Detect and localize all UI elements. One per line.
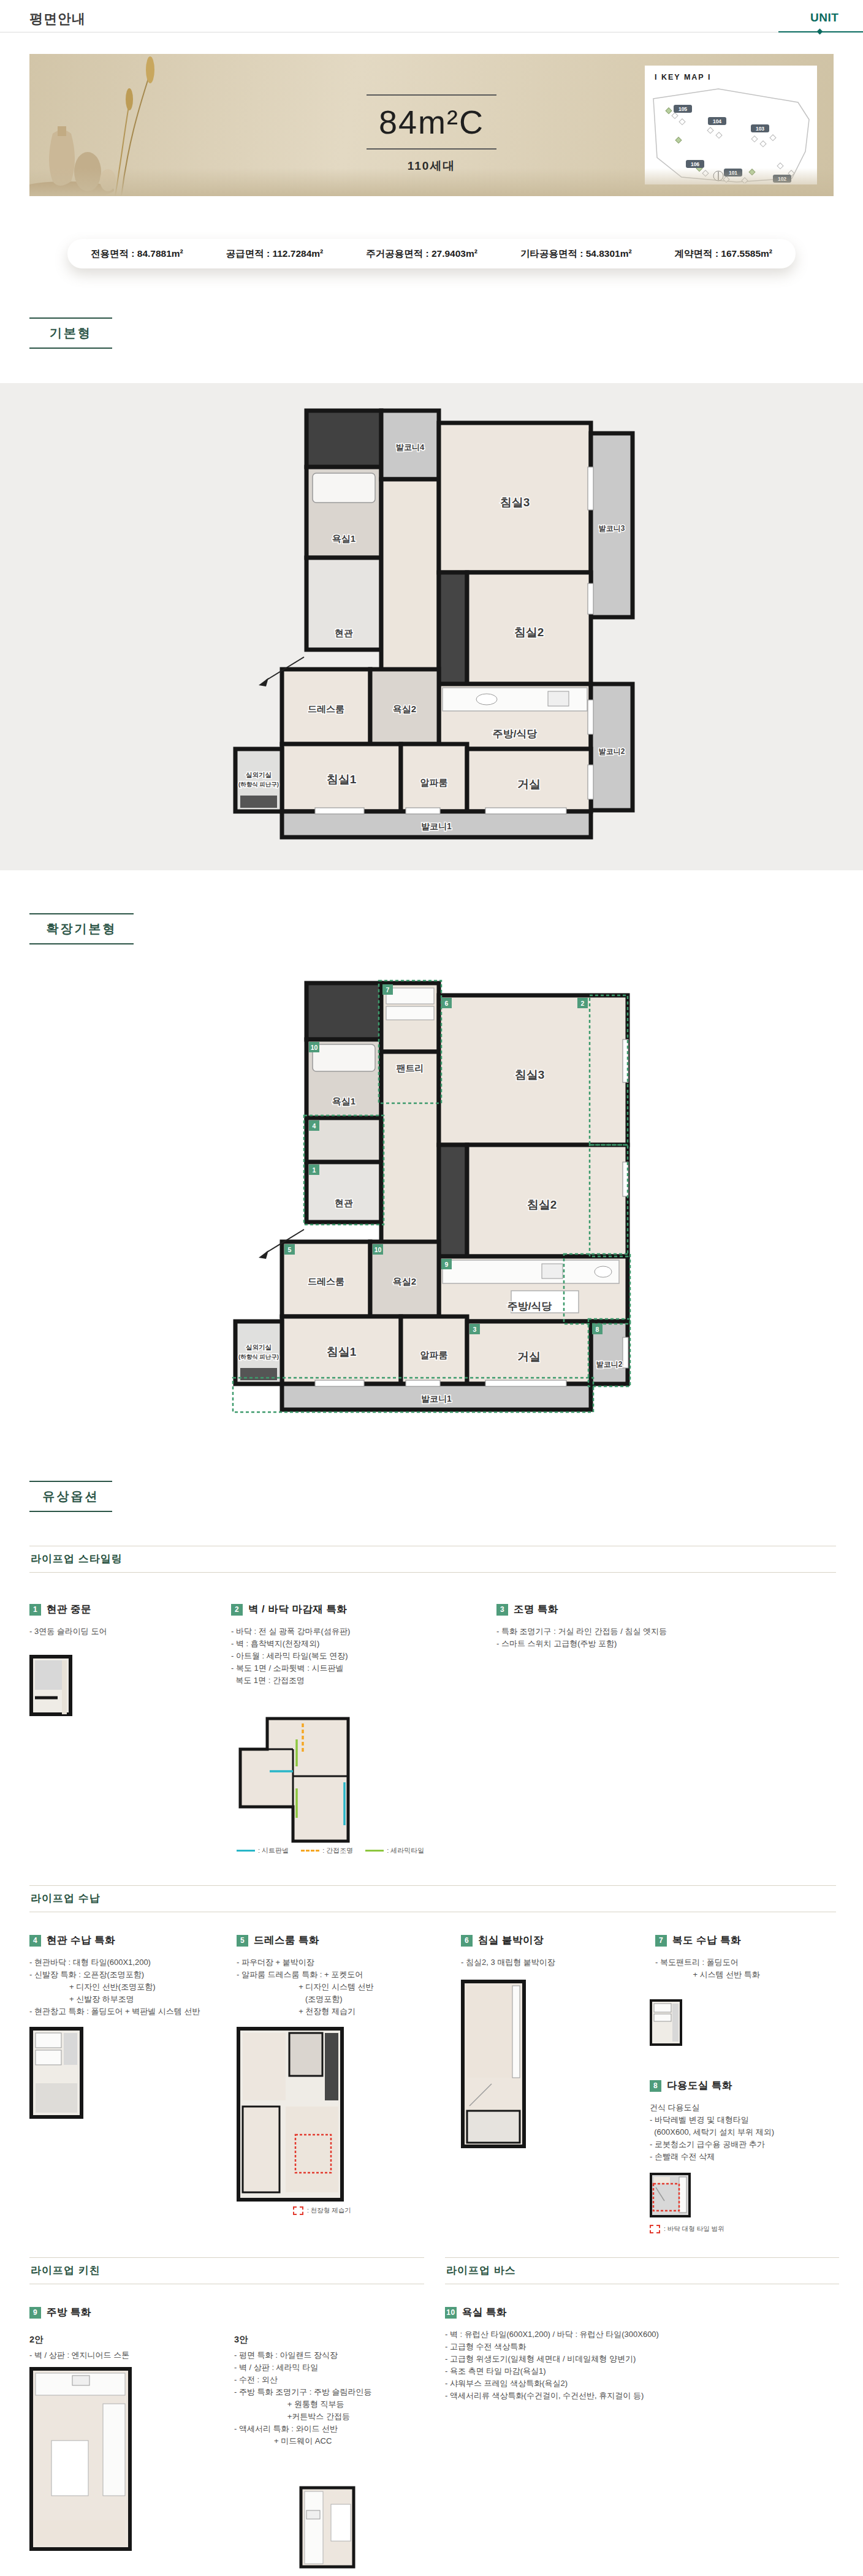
tab-unit[interactable]: UNIT [810, 11, 838, 25]
option-item-1: 1 현관 중문 - 3연동 슬라이딩 도어 [29, 1603, 213, 1638]
svg-text:침실2: 침실2 [514, 626, 544, 639]
option-9-title: 주방 특화 [47, 2306, 91, 2319]
section-label-paid-options: 유상옵션 [29, 1481, 112, 1512]
basic-floor-plan: 발코니4 욕실1 현관 침실3 발코니3 침실2 주방/식당 거실 발코니2 드… [223, 406, 640, 841]
option-6-title: 침실 붙박이장 [478, 1934, 544, 1947]
svg-text:103: 103 [756, 126, 764, 132]
red-dash-tile-swatch-icon [650, 2225, 660, 2233]
svg-text:욕실2: 욕실2 [393, 704, 416, 714]
svg-text:알파룸: 알파룸 [420, 1350, 448, 1360]
svg-text:106: 106 [691, 161, 699, 167]
dressroom-plan-thumbnail [237, 2027, 344, 2202]
svg-text:4: 4 [313, 1122, 316, 1130]
svg-text:3: 3 [473, 1326, 477, 1333]
option-item-7: 7 복도 수납 특화 - 복도팬트리 : 폴딩도어 + 시스템 선반 특화 [655, 1934, 839, 1981]
svg-text:침실2: 침실2 [527, 1198, 557, 1211]
option-1-badge: 1 [29, 1604, 41, 1616]
option-3-lines: - 특화 조명기구 : 거실 라인 간접등 / 침실 엣지등 - 스마트 스위치… [496, 1625, 834, 1650]
svg-text:발코니2: 발코니2 [599, 747, 625, 756]
option-9-badge: 9 [29, 2307, 41, 2319]
svg-text:2: 2 [581, 1000, 585, 1007]
svg-text:10: 10 [374, 1246, 382, 1253]
section-label-basic: 기본형 [29, 317, 112, 349]
svg-text:침실1: 침실1 [327, 773, 357, 786]
option-8-title: 다용도실 특화 [667, 2079, 732, 2092]
option-5-badge: 5 [237, 1935, 248, 1947]
option-item-10: 10 욕실 특화 - 벽 : 유럽산 타일(600X1,200) / 바닥 : … [445, 2306, 837, 2402]
tab-marker-icon [817, 29, 823, 35]
utility-room-plan-thumbnail [650, 2173, 691, 2217]
option-8-badge: 8 [650, 2080, 661, 2092]
area-item-residential-common: 주거공용면적 : 27.9403m² [366, 248, 477, 260]
svg-text:101: 101 [729, 170, 737, 176]
red-dash-swatch-icon [293, 2206, 303, 2215]
group-header-kitchen: 라이프업 키친 [29, 2257, 424, 2284]
option-3-title: 조명 특화 [514, 1603, 558, 1616]
svg-text:현관: 현관 [335, 628, 353, 638]
area-item-other-common: 기타공용면적 : 54.8301m² [520, 248, 632, 260]
svg-text:현관: 현관 [335, 1198, 353, 1208]
svg-text:104: 104 [713, 118, 721, 124]
variant-2-lines: - 벽 / 상판 : 엔지니어드 스톤 [29, 2349, 213, 2361]
area-item-supply: 공급면적 : 112.7284m² [226, 248, 324, 260]
kitchen-plan-2-thumbnail [29, 2367, 132, 2551]
option-7-lines: - 복도팬트리 : 폴딩도어 + 시스템 선반 특화 [655, 1956, 839, 1981]
corridor-pantry-plan-thumbnail [650, 1999, 682, 2046]
option-item-2: 2 벽 / 바닥 마감재 특화 - 바닥 : 전 실 광폭 강마루(섬유판) -… [231, 1603, 464, 1687]
legend-ceramic-tile: : 세라믹타일 [387, 1846, 424, 1855]
svg-text:주방/식당: 주방/식당 [508, 1301, 552, 1312]
option-4-title: 현관 수납 특화 [47, 1934, 115, 1947]
svg-text:거실: 거실 [517, 1350, 541, 1363]
option-8-lines: 건식 다용도실 - 바닥레벨 변경 및 대형타일 (600X600, 세탁기 설… [650, 2102, 852, 2163]
svg-text:7: 7 [386, 986, 390, 994]
svg-text:발코니1: 발코니1 [421, 1394, 452, 1404]
option-6-badge: 6 [461, 1935, 473, 1947]
group-header-styling: 라이프업 스타일링 [29, 1546, 836, 1573]
option-item-9: 9 주방 특화 [29, 2306, 275, 2319]
group-header-storage: 라이프업 수납 [29, 1885, 836, 1912]
option-10-title: 욕실 특화 [462, 2306, 507, 2319]
variant-2-label: 2안 [29, 2334, 213, 2346]
page-title: 평면안내 [29, 10, 86, 28]
finish-material-plan-thumbnail [237, 1715, 353, 1845]
header-divider [0, 32, 863, 32]
option-1-title: 현관 중문 [47, 1603, 91, 1616]
option-10-badge: 10 [445, 2307, 457, 2319]
hero-center-block: 84m²C 110세대 [352, 94, 511, 174]
svg-text:10: 10 [311, 1044, 318, 1051]
option-item-6: 6 침실 붙박이장 - 침실2, 3 매립형 붙박이장 [461, 1934, 639, 1969]
svg-text:발코니4: 발코니4 [396, 443, 425, 452]
ceramic-tile-swatch-icon [365, 1850, 384, 1852]
bedroom-closet-plan-thumbnail [461, 1980, 526, 2148]
household-count: 110세대 [352, 158, 511, 174]
svg-text:드레스룸: 드레스룸 [308, 704, 344, 714]
svg-text:발코니1: 발코니1 [421, 821, 452, 831]
variant-3-lines: - 평면 특화 : 아일랜드 장식장 - 벽 / 상판 : 세라믹 타일 - 수… [234, 2349, 430, 2447]
svg-text:주방/식당: 주방/식당 [493, 728, 538, 740]
option-item-5: 5 드레스룸 특화 - 파우더장 + 붙박이장 - 알파룸 드레스룸 특화 : … [237, 1934, 445, 2018]
dehumidifier-legend: : 천장형 제습기 [293, 2206, 351, 2215]
dried-grass-decoration-icon [29, 54, 238, 196]
tile-range-legend: : 바닥 대형 타일 범위 [650, 2225, 724, 2233]
option-7-title: 복도 수납 특화 [672, 1934, 741, 1947]
option-6-lines: - 침실2, 3 매립형 붙박이장 [461, 1956, 639, 1969]
svg-text:105: 105 [679, 106, 687, 112]
hero-top-rule [367, 94, 496, 96]
svg-text:욕실1: 욕실1 [332, 533, 355, 544]
option-5-title: 드레스룸 특화 [254, 1934, 319, 1947]
svg-text:(하향식 피난구): (하향식 피난구) [238, 1353, 279, 1360]
floor-plan-page: 평면안내 UNIT 84m²C 110세대 I KEY MAP I [0, 0, 863, 2576]
entrance-door-plan-thumbnail [29, 1655, 72, 1716]
option-item-4: 4 현관 수납 특화 - 현관바닥 : 대형 타일(600X1,200) - 신… [29, 1934, 226, 2018]
option-item-3: 3 조명 특화 - 특화 조명기구 : 거실 라인 간접등 / 침실 엣지등 -… [496, 1603, 834, 1650]
svg-text:알파룸: 알파룸 [420, 777, 448, 788]
svg-text:욕실1: 욕실1 [332, 1096, 355, 1106]
option-4-lines: - 현관바닥 : 대형 타일(600X1,200) - 신발장 특화 : 오픈장… [29, 1956, 226, 2018]
entry-storage-plan-thumbnail [29, 2027, 83, 2119]
option-5-lines: - 파우더장 + 붙박이장 - 알파룸 드레스룸 특화 : + 포켓도어 + 디… [237, 1956, 445, 2018]
svg-text:팬트리: 팬트리 [397, 1063, 424, 1073]
option-9-variant-3: 3안 - 평면 특화 : 아일랜드 장식장 - 벽 / 상판 : 세라믹 타일 … [234, 2334, 430, 2447]
area-item-exclusive: 전용면적 : 84.7881m² [91, 248, 183, 260]
legend-sheet-panel: : 시트판넬 [258, 1846, 289, 1855]
svg-text:8: 8 [596, 1326, 599, 1333]
svg-text:침실1: 침실1 [327, 1345, 357, 1358]
key-map-title: I KEY MAP I [655, 73, 711, 82]
option-2-lines: - 바닥 : 전 실 광폭 강마루(섬유판) - 벽 : 흡착벽지(천장제외) … [231, 1625, 464, 1687]
svg-text:9: 9 [445, 1261, 449, 1268]
svg-text:발코니2: 발코니2 [596, 1360, 623, 1369]
option-9-variant-2: 2안 - 벽 / 상판 : 엔지니어드 스톤 [29, 2334, 213, 2361]
option-3-badge: 3 [496, 1604, 508, 1616]
section-label-extended: 확장기본형 [29, 913, 134, 944]
svg-text:실외기실: 실외기실 [246, 771, 272, 778]
option-2-title: 벽 / 바닥 마감재 특화 [248, 1603, 347, 1616]
hero-banner: 84m²C 110세대 I KEY MAP I [29, 54, 834, 196]
svg-text:발코니3: 발코니3 [599, 524, 625, 533]
option-item-8: 8 다용도실 특화 건식 다용도실 - 바닥레벨 변경 및 대형타일 (600X… [650, 2079, 852, 2163]
svg-text:욕실2: 욕실2 [393, 1276, 416, 1286]
svg-text:침실3: 침실3 [500, 496, 530, 509]
sheet-panel-swatch-icon [237, 1850, 255, 1852]
svg-text:5: 5 [288, 1246, 292, 1253]
area-item-contract: 계약면적 : 167.5585m² [675, 248, 772, 260]
variant-3-label: 3안 [234, 2334, 430, 2346]
key-map-card: I KEY MAP I [645, 66, 817, 184]
svg-text:실외기실: 실외기실 [246, 1343, 272, 1351]
area-info-bar: 전용면적 : 84.7881m² 공급면적 : 112.7284m² 주거공용면… [67, 239, 796, 268]
legend-indirect-light: : 간접조명 [322, 1846, 353, 1855]
hero-bottom-rule [367, 148, 496, 150]
svg-text:드레스룸: 드레스룸 [308, 1276, 344, 1286]
group-header-bath: 라이프업 바스 [445, 2257, 839, 2284]
svg-text:6: 6 [445, 1000, 449, 1007]
kitchen-plan-3-thumbnail [299, 2486, 355, 2569]
option-4-badge: 4 [29, 1935, 41, 1947]
site-map-icon: 105 104 103 106 101 102 [645, 85, 817, 183]
option-10-lines: - 벽 : 유럽산 타일(600X1,200) / 바닥 : 유럽산 타일(30… [445, 2328, 837, 2402]
finish-legend: : 시트판넬 : 간접조명 : 세라믹타일 [237, 1846, 424, 1855]
extended-floor-plan: 팬트리 욕실1 현관 침실3 침실2 주방/식당 거실 발코니2 드레스룸 욕실… [223, 978, 640, 1413]
svg-text:(하향식 피난구): (하향식 피난구) [238, 781, 279, 788]
svg-text:거실: 거실 [517, 778, 541, 791]
unit-type-name: 84m²C [352, 103, 511, 141]
indirect-light-swatch-icon [301, 1850, 319, 1852]
svg-text:침실3: 침실3 [515, 1068, 545, 1081]
svg-text:1: 1 [313, 1166, 316, 1174]
option-7-badge: 7 [655, 1935, 667, 1947]
svg-text:102: 102 [778, 176, 786, 182]
option-1-lines: - 3연동 슬라이딩 도어 [29, 1625, 213, 1638]
option-2-badge: 2 [231, 1604, 243, 1616]
